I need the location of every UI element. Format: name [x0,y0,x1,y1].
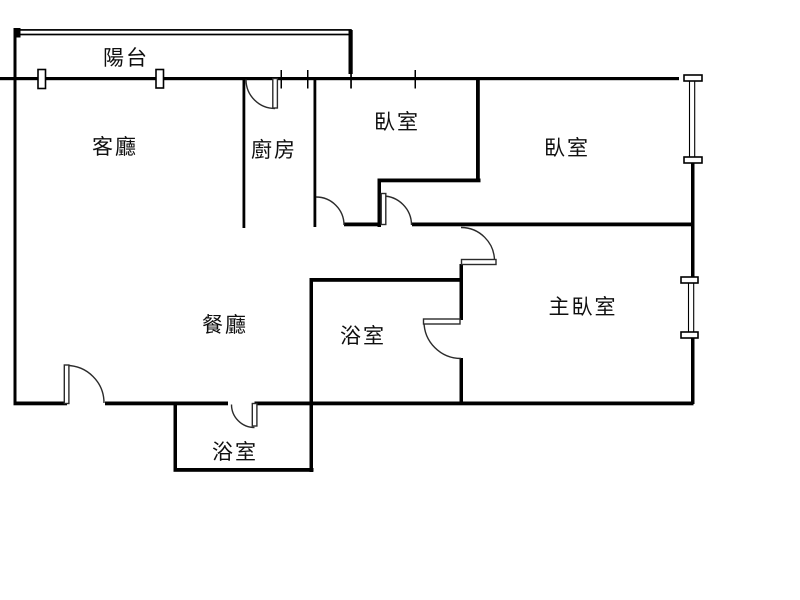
floor-plan-drawing [0,0,800,600]
master-window-bar-top [681,277,698,283]
bedroom2-window-bar-bottom [684,157,702,163]
master-west-wall-seg-1 [460,264,464,320]
bathroom1-door-leaf [424,319,461,324]
kitchen-left-wall [243,80,246,228]
wall-right-seg-1 [691,163,695,277]
top-wall-tick-1 [281,70,283,89]
master-west-wall-seg-2 [460,358,464,403]
room-label-bathroom-1: 浴室 [340,320,386,350]
room-label-kitchen: 廚房 [251,134,297,164]
wall-bottom-seg-1 [14,402,68,406]
room-label-living-room: 客廳 [92,131,138,161]
wall-top [0,77,679,80]
wall-left [14,29,17,404]
wall-bottom-seg-3 [255,402,694,406]
living-room-window-1 [38,70,46,89]
dining-divider-wall [310,278,314,472]
wall-right-seg-2 [691,338,695,404]
master-window-glass [689,282,694,333]
bathroom2-door-leaf [252,404,257,427]
top-wall-tick-3 [415,70,417,89]
room-label-dining-room: 餐廳 [202,309,248,339]
bathroom1-door-arc [424,322,461,359]
top-wall-tick-2 [307,70,309,89]
bedroom1-door-arc [316,197,344,225]
hall-south-wall-seg-1 [344,223,380,227]
master-door-leaf [462,260,497,265]
kitchen-right-wall [314,80,317,227]
hallway-stub-wall [378,179,382,228]
bedroom2-window-bar-top [684,75,702,81]
hall-south-wall-seg-2 [412,223,694,227]
hallway-door-leaf [381,194,386,225]
living-room-window-2 [156,70,164,89]
bedroom-divider-wall [476,78,480,182]
bedroom1-south-wall [378,179,481,183]
master-door-arc [461,228,495,262]
bathroom1-north-wall [311,278,461,282]
floor-plan: 陽台 客廳 廚房 臥室 臥室 主臥室 餐廳 浴室 浴室 [0,0,800,600]
entry-door-arc [67,366,105,404]
bathroom2-door-arc [232,405,255,428]
hallway-door-arc [383,196,412,225]
room-label-bedroom-1: 臥室 [374,106,420,136]
wall-bottom-seg-2 [105,402,228,406]
kitchen-balcony-door-leaf [273,79,278,109]
room-label-balcony: 陽台 [103,42,149,72]
balcony-parapet [16,30,351,35]
bathroom2-left-wall [174,404,178,472]
master-window-bar-bottom [681,332,698,338]
bedroom2-window-glass [690,80,695,158]
bathroom2-bottom-wall [174,468,314,472]
room-label-bathroom-2: 浴室 [212,436,258,466]
balcony-corner-nub [14,28,21,38]
entry-door-leaf [64,365,69,404]
room-label-bedroom-2: 臥室 [544,132,590,162]
balcony-right-wall [349,30,353,74]
balcony-right-wall-tick [350,74,352,89]
room-label-master-bedroom: 主臥室 [549,291,618,321]
kitchen-balcony-door-arc [246,80,275,109]
